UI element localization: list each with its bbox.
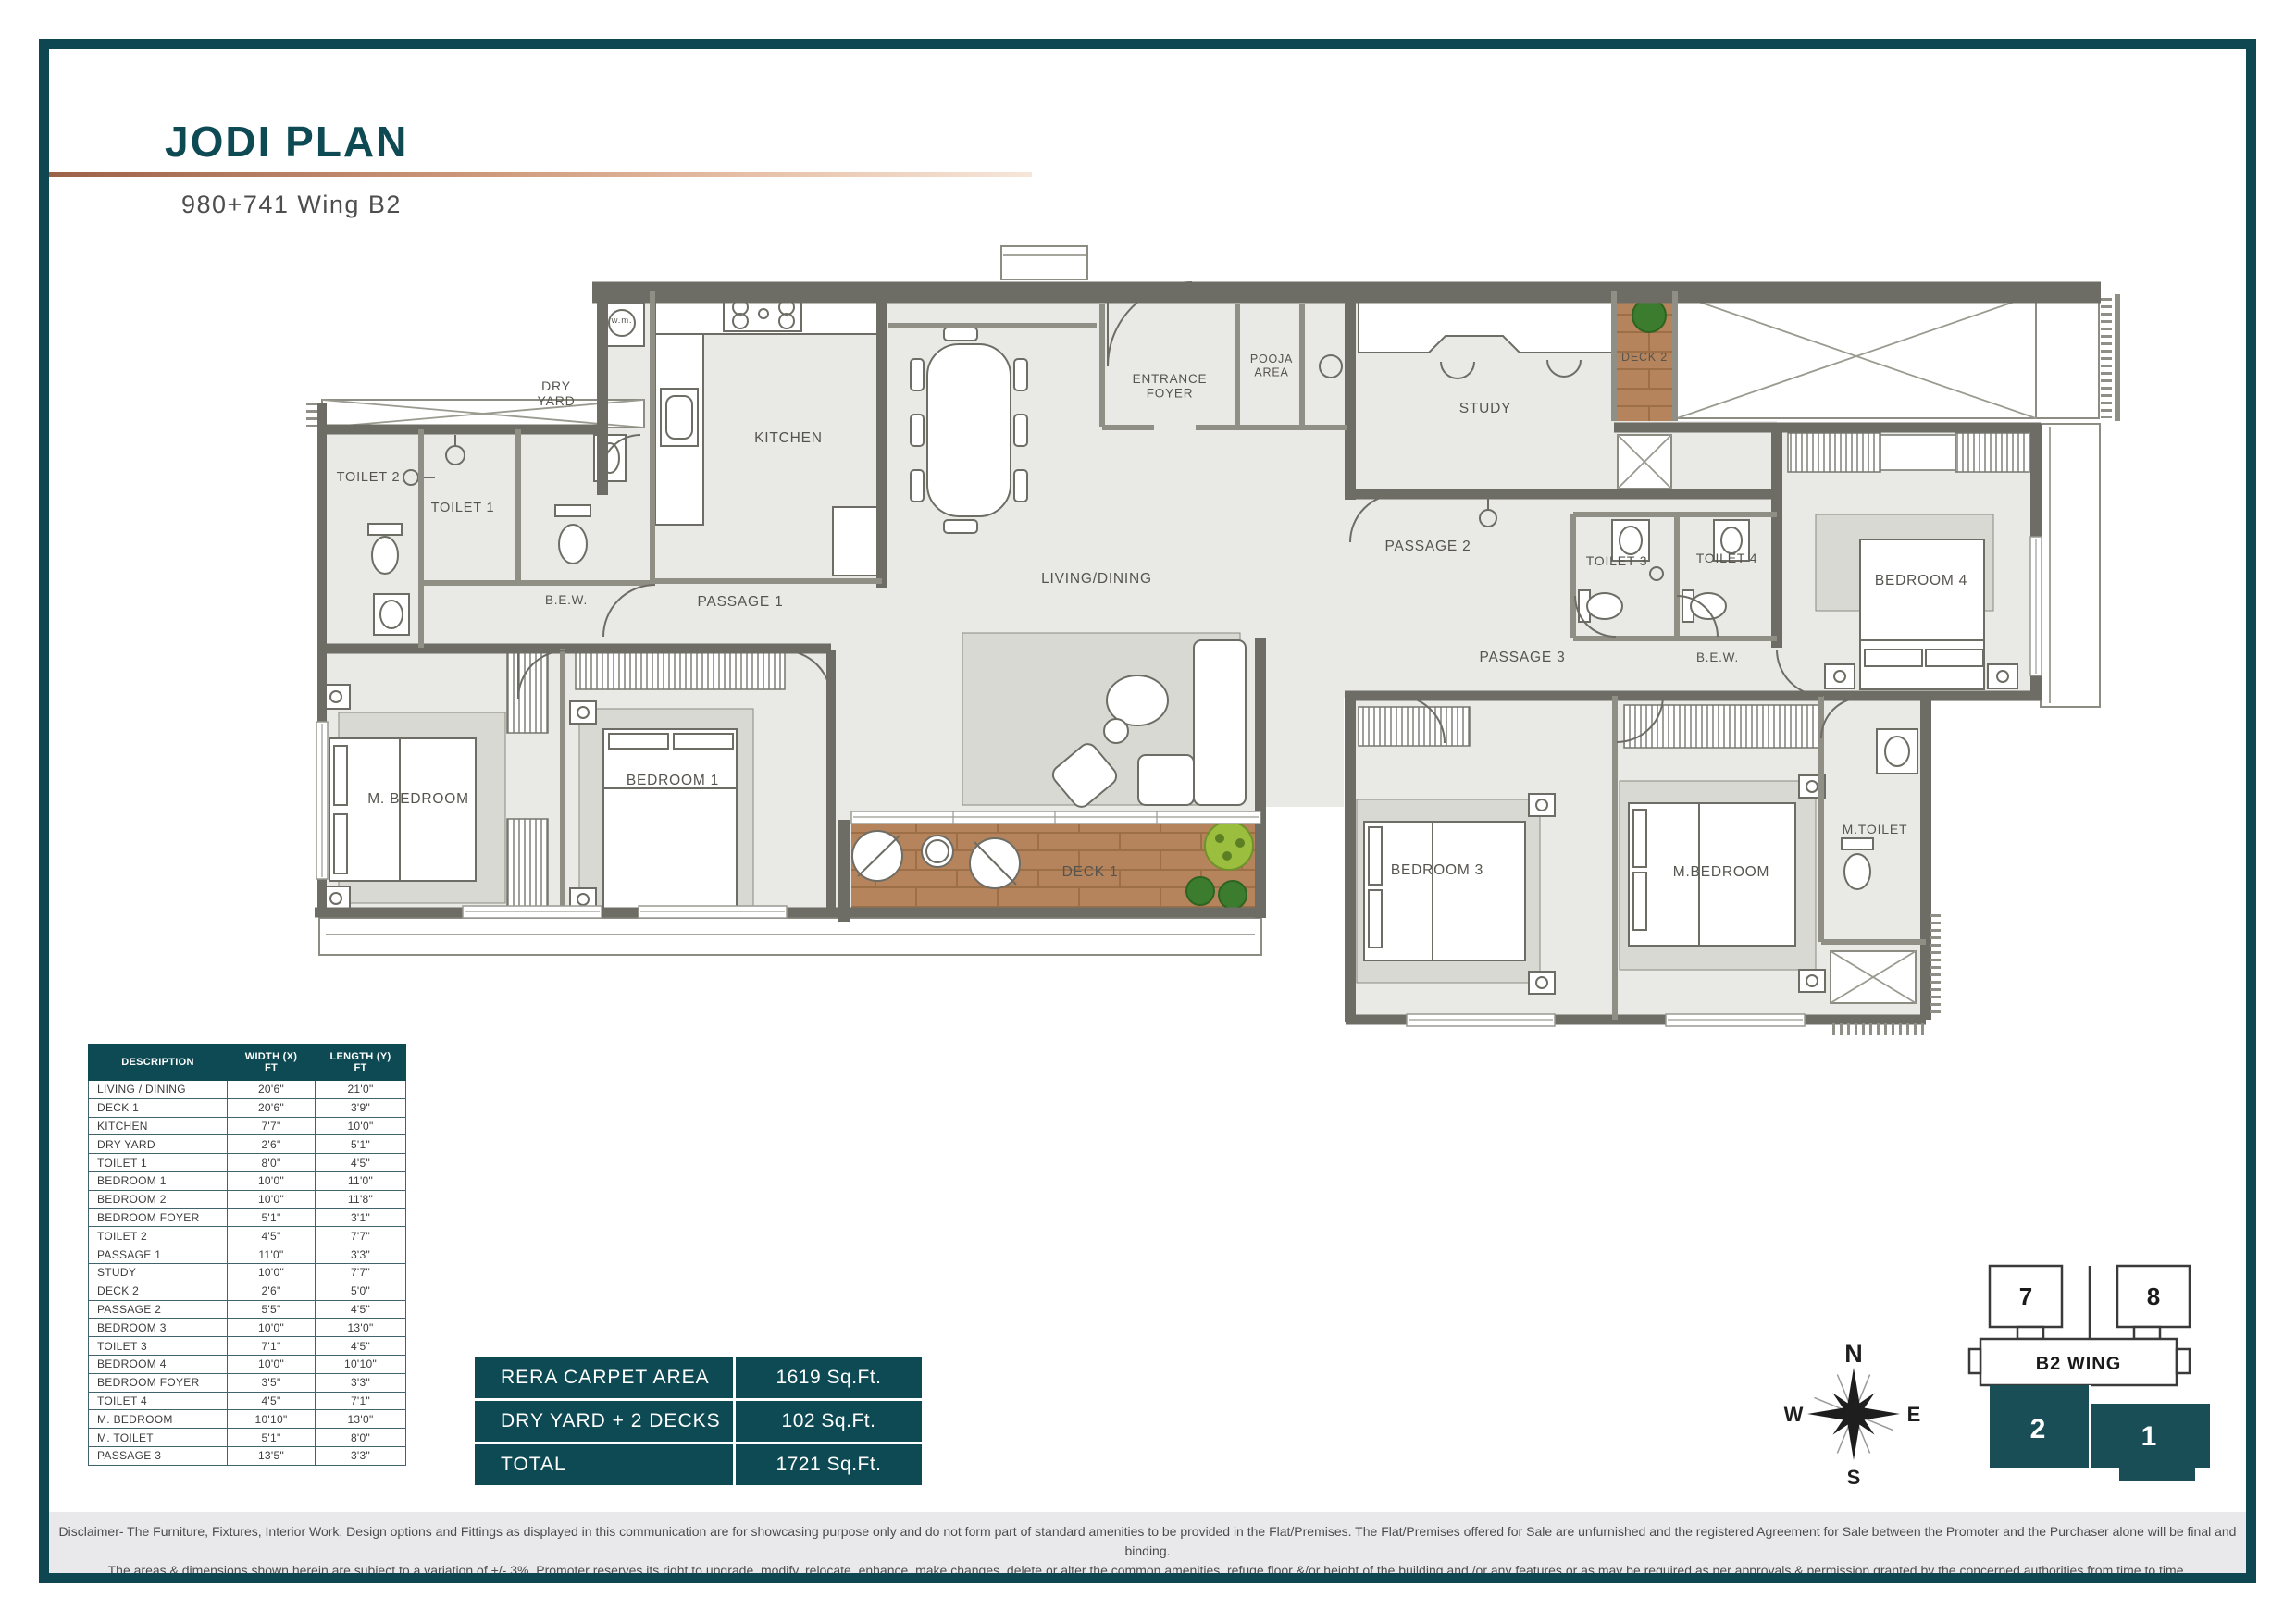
brochure-page: TOILET 2TOILET 1DRYYARDw.m.KITCHENB.E.W.… <box>0 0 2296 1623</box>
page-border-frame <box>39 39 2256 1583</box>
